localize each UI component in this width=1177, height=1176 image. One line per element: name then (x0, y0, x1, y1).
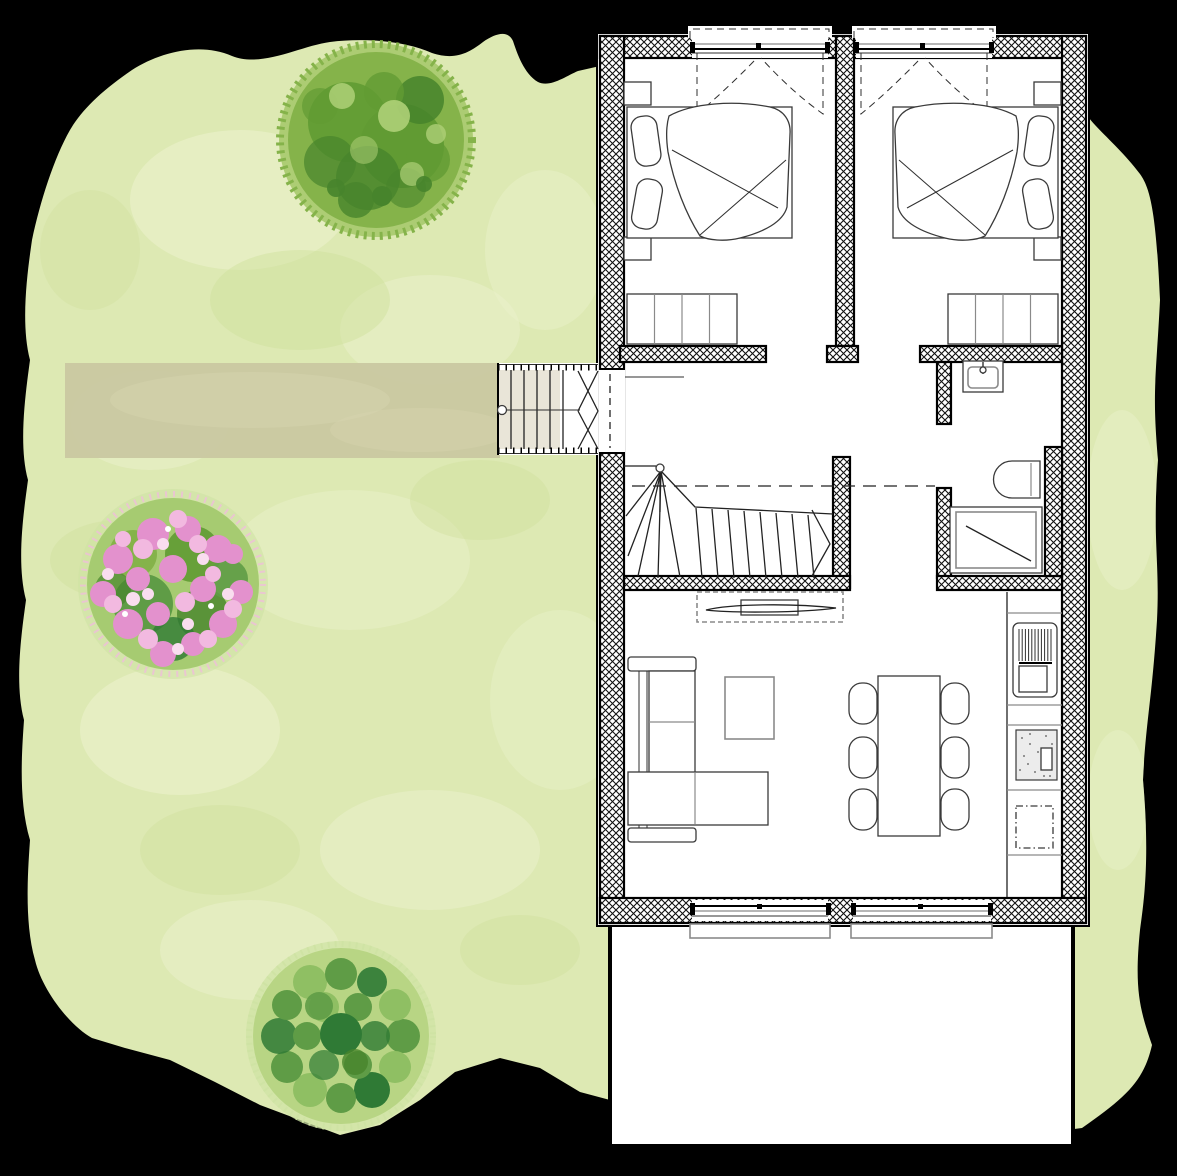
terrace (610, 923, 1073, 1146)
flowering-shrub (78, 489, 268, 679)
window-sill (690, 924, 830, 938)
dishwasher (1016, 806, 1053, 848)
dining-chair (941, 737, 969, 778)
shower (950, 507, 1042, 573)
dining-chair (849, 789, 877, 830)
wall-south (600, 898, 1086, 923)
building (597, 26, 1089, 938)
large-tree (279, 43, 473, 237)
stair-south-wall (624, 576, 850, 590)
sliding-window-1 (690, 900, 831, 938)
bedroom2-south-wall (920, 346, 1062, 362)
bathroom-wall-lower (937, 488, 951, 578)
sofa-armrest (628, 657, 696, 671)
wall-east (1062, 36, 1086, 923)
bedroom-partition-wall (836, 36, 854, 346)
nightstand (624, 237, 651, 260)
bathroom-south-wall (937, 576, 1062, 590)
stair-east-wall (833, 457, 850, 588)
bathroom-duct-wall (1045, 447, 1062, 576)
sofa-armrest (628, 828, 696, 842)
stair-start-marker (498, 406, 507, 415)
wardrobe (627, 294, 737, 344)
cooktop (1013, 623, 1057, 697)
nightstand (624, 82, 651, 105)
toilet (994, 461, 1040, 498)
dining-chair (941, 683, 969, 724)
kitchen-sink (1016, 730, 1057, 780)
oven (1019, 666, 1047, 692)
dining-chair (849, 737, 877, 778)
window-sill (851, 924, 992, 938)
round-shrub (246, 941, 436, 1131)
coffee-table (725, 677, 774, 739)
wall-west (600, 36, 624, 923)
floor-plan-canvas (0, 0, 1177, 1176)
partition-cap (827, 346, 858, 362)
dining-chair (849, 683, 877, 724)
dining-table (878, 676, 940, 836)
sofa-chaise (628, 772, 768, 825)
garden-path (65, 363, 510, 458)
bathroom-wall-upper (937, 362, 951, 424)
bedroom1-south-wall (620, 346, 766, 362)
floor-plan-scene (0, 0, 1177, 1176)
dining-set (849, 676, 969, 836)
dining-chair (941, 789, 969, 830)
stair-newel (656, 464, 664, 472)
tv-sideboard (697, 592, 843, 622)
entrance-stairs (498, 363, 599, 455)
washbasin (963, 361, 1003, 392)
sliding-window-2 (851, 900, 993, 938)
